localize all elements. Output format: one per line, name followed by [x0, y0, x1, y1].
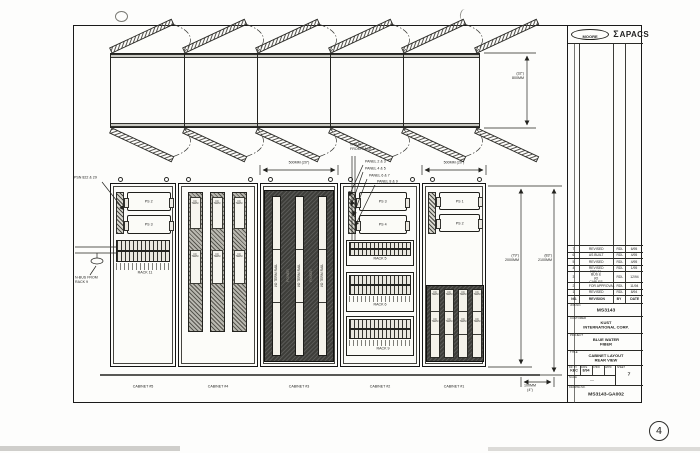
dim-cab3-width: 500MM (20") [265, 161, 333, 165]
dim-base: 100MM (4") [496, 384, 564, 392]
title-block: MOORE Σ APACS 7 REVISED RDL 6/95 6 AS BU… [567, 25, 642, 403]
drawing-number: MS3143-GA002 [560, 392, 653, 398]
moore-logo: MOORE [571, 29, 609, 40]
customer-name: KUST INTERNATIONAL CORP. [569, 321, 644, 330]
scale-cell: SCALE — [568, 375, 616, 385]
dimension-lines [100, 53, 562, 387]
revision-table: 7 REVISED RDL 6/95 6 AS BUILT RDL 4/95 5… [568, 245, 643, 302]
revision-row: 3 RCV N-BUS & I/O CABLES RDL 12/94 [568, 271, 643, 282]
customer-section: CUSTOMER KUST INTERNATIONAL CORP. [568, 316, 643, 333]
logo-row: MOORE Σ APACS [568, 25, 643, 44]
drawing-title: CABINET LAYOUT REAR VIEW [569, 354, 644, 363]
callout-psn: PSN 822 & 29 [74, 176, 142, 180]
cabinet-label: CABINET #3 [265, 385, 333, 389]
cabinet-label: CABINET #5 [109, 385, 177, 389]
job-section: JOB NO. MS3143 [568, 303, 643, 316]
dim-cab1-width: 500MM (20") [420, 161, 488, 165]
cabinet-label: CABINET #4 [184, 385, 252, 389]
cabinet-label: CABINET #1 [420, 385, 488, 389]
scanned-drawing-page: PS 2 PS 3 RACK 11 I/O TERM I/O TERM I/O … [0, 0, 700, 453]
callout-panel: PANEL 8 & 9 [377, 180, 445, 184]
dim-plan-depth: (32") 800MM [457, 72, 525, 80]
callout-panel: PANEL 6 & 7 [369, 174, 437, 178]
revision-header-row: NO. REVISION BY DATE [568, 295, 643, 302]
callout-panel: PANEL 4 & 5 [365, 167, 433, 171]
callout-nbus-rack9: N-BUS FROM RACK 9 [75, 276, 143, 284]
sheet-label: SHEET [617, 366, 662, 369]
cabinet-label: CABINET #2 [346, 385, 414, 389]
customer-label: CUSTOMER [570, 317, 623, 320]
project-section: PROJECT BLUE WATER FIBER [568, 333, 643, 350]
dim-height-outer: (83") 2100MM [485, 254, 553, 262]
leader-lines [75, 156, 375, 275]
title-section: TITLE CABINET LAYOUT REAR VIEW [568, 350, 643, 365]
dwg-label: DRAWING NO. [569, 386, 614, 389]
job-number: MS3143 [560, 308, 653, 314]
apacs-logo: APACS [620, 30, 649, 39]
page-mark: 4 [656, 426, 662, 437]
door-swing-arcs [174, 25, 483, 157]
project-name: BLUE WATER FIBER [569, 338, 644, 347]
callout-nbus-rack1: N-BUS FROM RACK 1 [350, 143, 418, 151]
drawing-number-section: DRAWING NO. MS3143-GA002 [568, 385, 643, 403]
page-mark-circle: 4 [649, 421, 669, 441]
apacs-logo-icon: Σ [613, 29, 618, 39]
scale-value: — [555, 378, 630, 382]
